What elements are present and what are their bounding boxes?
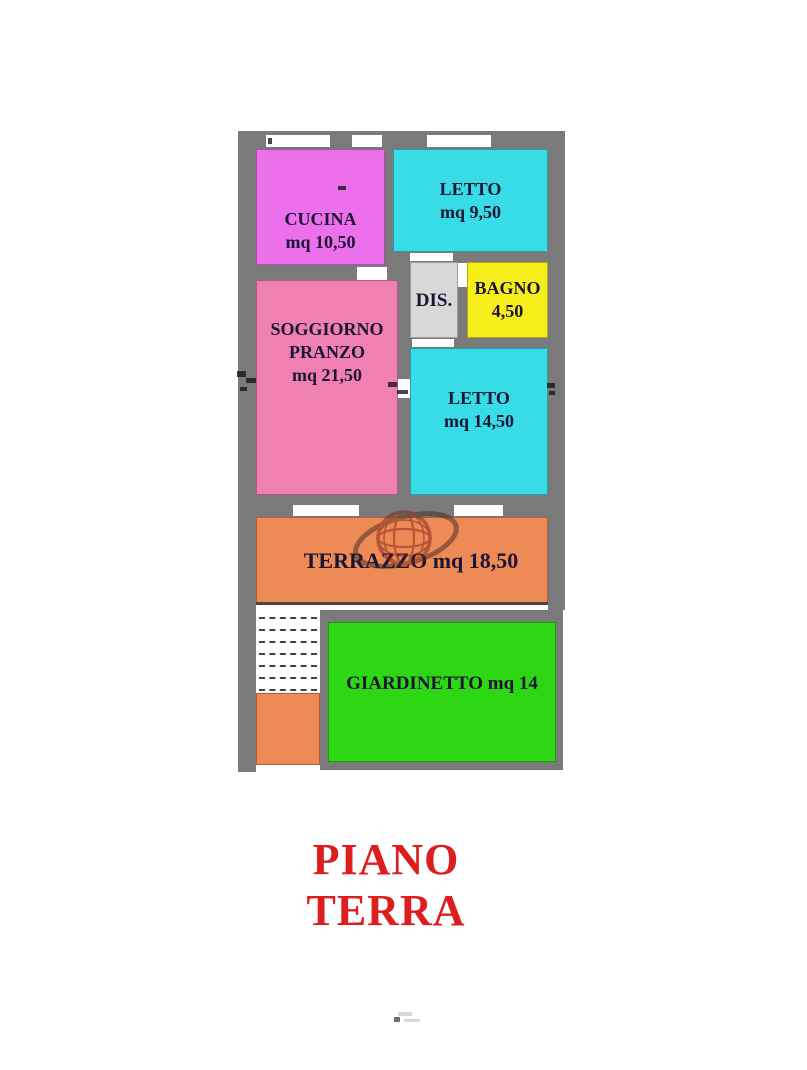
room-area: mq 14,50	[444, 410, 514, 433]
dimension-mark	[268, 138, 272, 144]
wall	[385, 149, 393, 265]
door-opening	[458, 263, 467, 287]
dimension-mark	[338, 186, 346, 190]
room-name: SOGGIORNO	[270, 318, 383, 341]
room-area: mq 10,50	[285, 231, 357, 254]
stair-step	[259, 653, 317, 655]
page-title: PIANO TERRA	[238, 834, 534, 936]
room-name: DIS.	[416, 289, 452, 312]
wall	[238, 149, 256, 772]
room-area: 4,50	[474, 300, 540, 323]
dimension-mark	[547, 383, 555, 388]
landing-block	[256, 693, 320, 765]
dimension-mark	[246, 378, 256, 383]
window-opening	[266, 135, 330, 147]
room-label: BAGNO 4,50	[474, 277, 540, 323]
stair-step	[259, 641, 317, 643]
room-label: GIARDINETTO mq 14	[346, 672, 538, 695]
stair-step	[259, 689, 317, 691]
stair-step	[259, 665, 317, 667]
room-name-2: PRANZO	[270, 341, 383, 364]
door-opening	[357, 267, 387, 280]
stair-step	[259, 617, 317, 619]
room-letto-2: LETTO mq 14,50	[410, 348, 548, 495]
terrace-edge-line	[256, 602, 548, 605]
globe-icon	[346, 491, 466, 591]
dimension-mark	[240, 387, 247, 391]
floor-plan-page: CUCINA mq 10,50 LETTO mq 9,50 DIS. BAGNO…	[0, 0, 807, 1070]
room-letto-1: LETTO mq 9,50	[393, 149, 548, 252]
room-label: CUCINA mq 10,50	[285, 208, 357, 254]
print-artifact	[394, 1017, 400, 1022]
dimension-mark	[237, 371, 246, 377]
stair-step	[259, 677, 317, 679]
dimension-mark	[388, 382, 397, 387]
window-opening	[352, 135, 382, 147]
dimension-mark	[549, 391, 555, 395]
room-name: LETTO	[444, 387, 514, 410]
room-soggiorno-pranzo: SOGGIORNO PRANZO mq 21,50	[256, 280, 398, 495]
print-artifact	[398, 1012, 412, 1016]
print-artifact	[404, 1019, 420, 1022]
room-area: mq 9,50	[440, 201, 502, 224]
wall	[548, 149, 565, 610]
room-giardinetto: GIARDINETTO mq 14	[328, 622, 556, 762]
room-bagno: BAGNO 4,50	[467, 262, 548, 338]
room-name: LETTO	[440, 178, 502, 201]
room-label: SOGGIORNO PRANZO mq 21,50	[270, 318, 383, 387]
room-disimpegno: DIS.	[410, 262, 458, 338]
room-label: DIS.	[416, 289, 452, 312]
room-area: mq 21,50	[270, 364, 383, 387]
room-cucina: CUCINA mq 10,50	[256, 149, 385, 265]
room-name: CUCINA	[285, 208, 357, 231]
window-opening	[427, 135, 491, 147]
stair-step	[259, 629, 317, 631]
room-name: BAGNO	[474, 277, 540, 300]
staircase	[256, 607, 320, 693]
door-opening	[410, 253, 453, 261]
room-label: LETTO mq 9,50	[440, 178, 502, 224]
door-opening	[412, 339, 454, 347]
room-label: LETTO mq 14,50	[444, 387, 514, 433]
dimension-mark	[397, 390, 408, 394]
